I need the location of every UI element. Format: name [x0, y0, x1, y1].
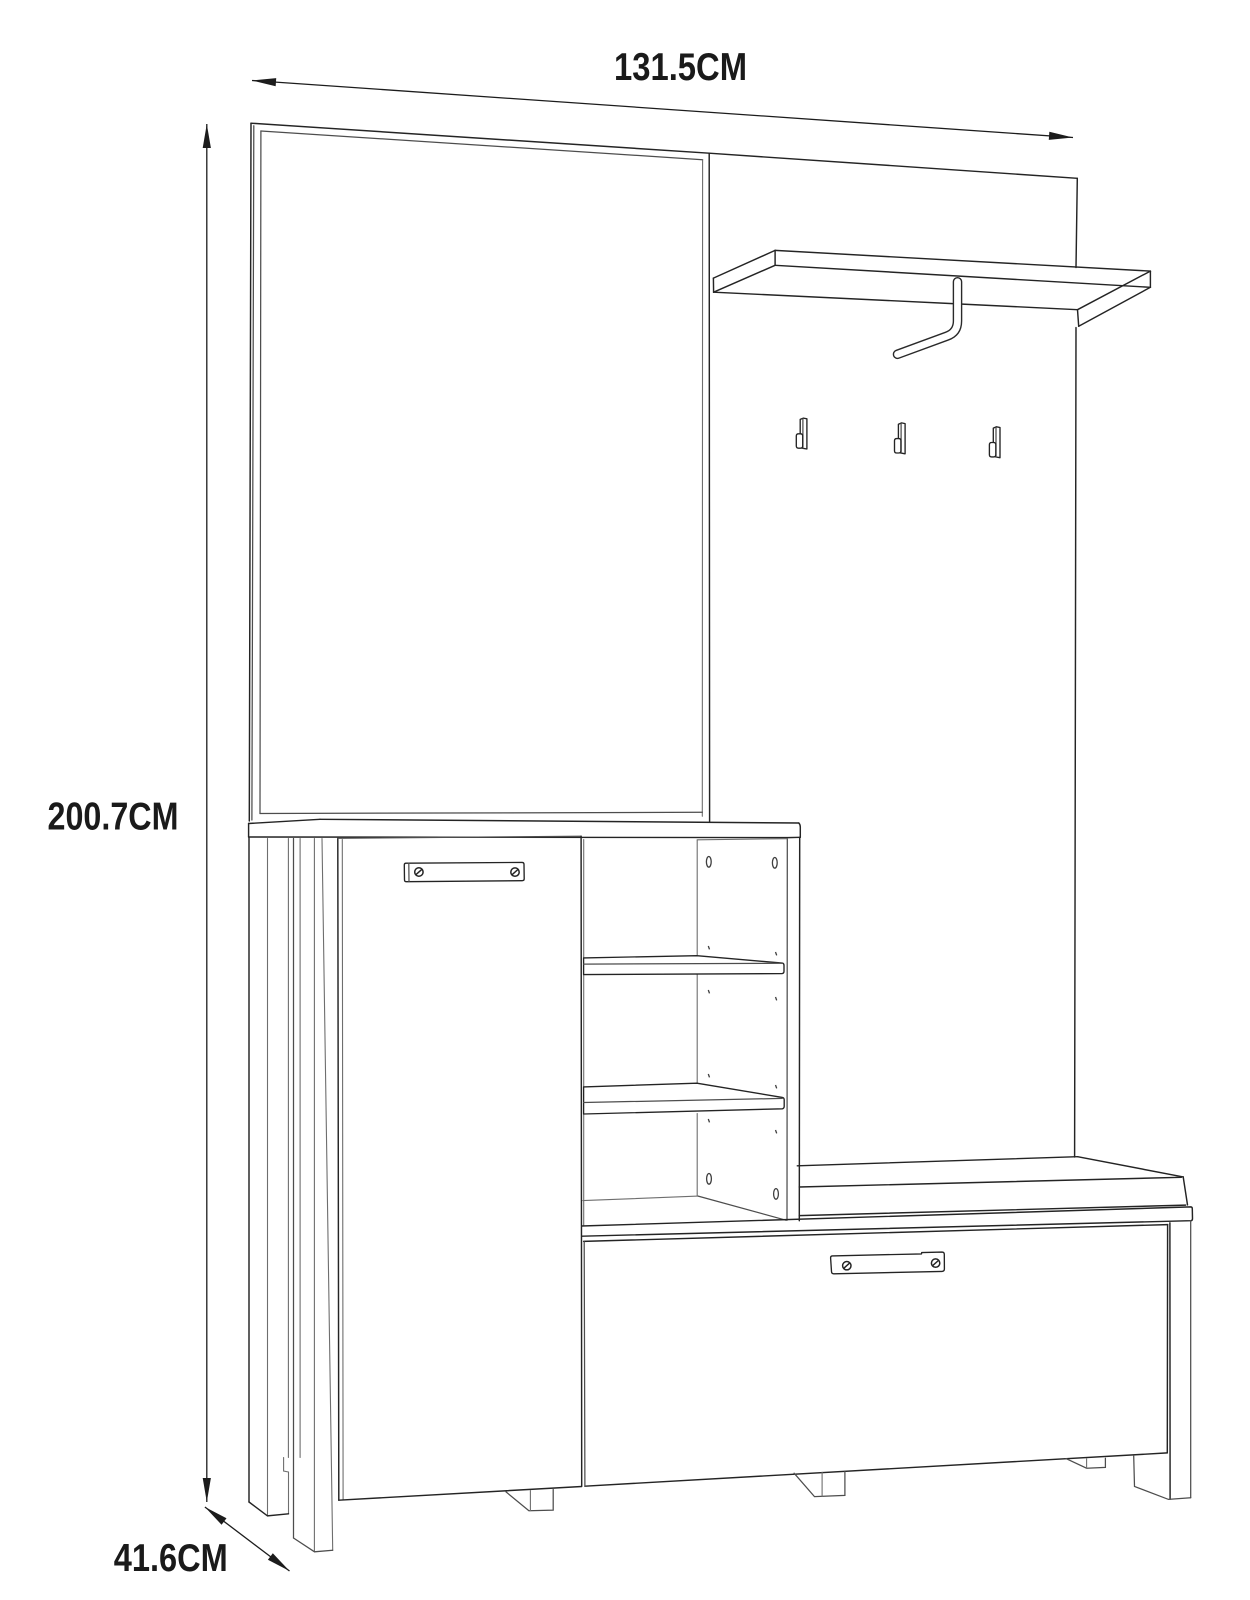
svg-text:131.5CM: 131.5CM — [614, 46, 747, 89]
svg-text:41.6CM: 41.6CM — [114, 1537, 228, 1580]
svg-text:200.7CM: 200.7CM — [48, 796, 179, 839]
